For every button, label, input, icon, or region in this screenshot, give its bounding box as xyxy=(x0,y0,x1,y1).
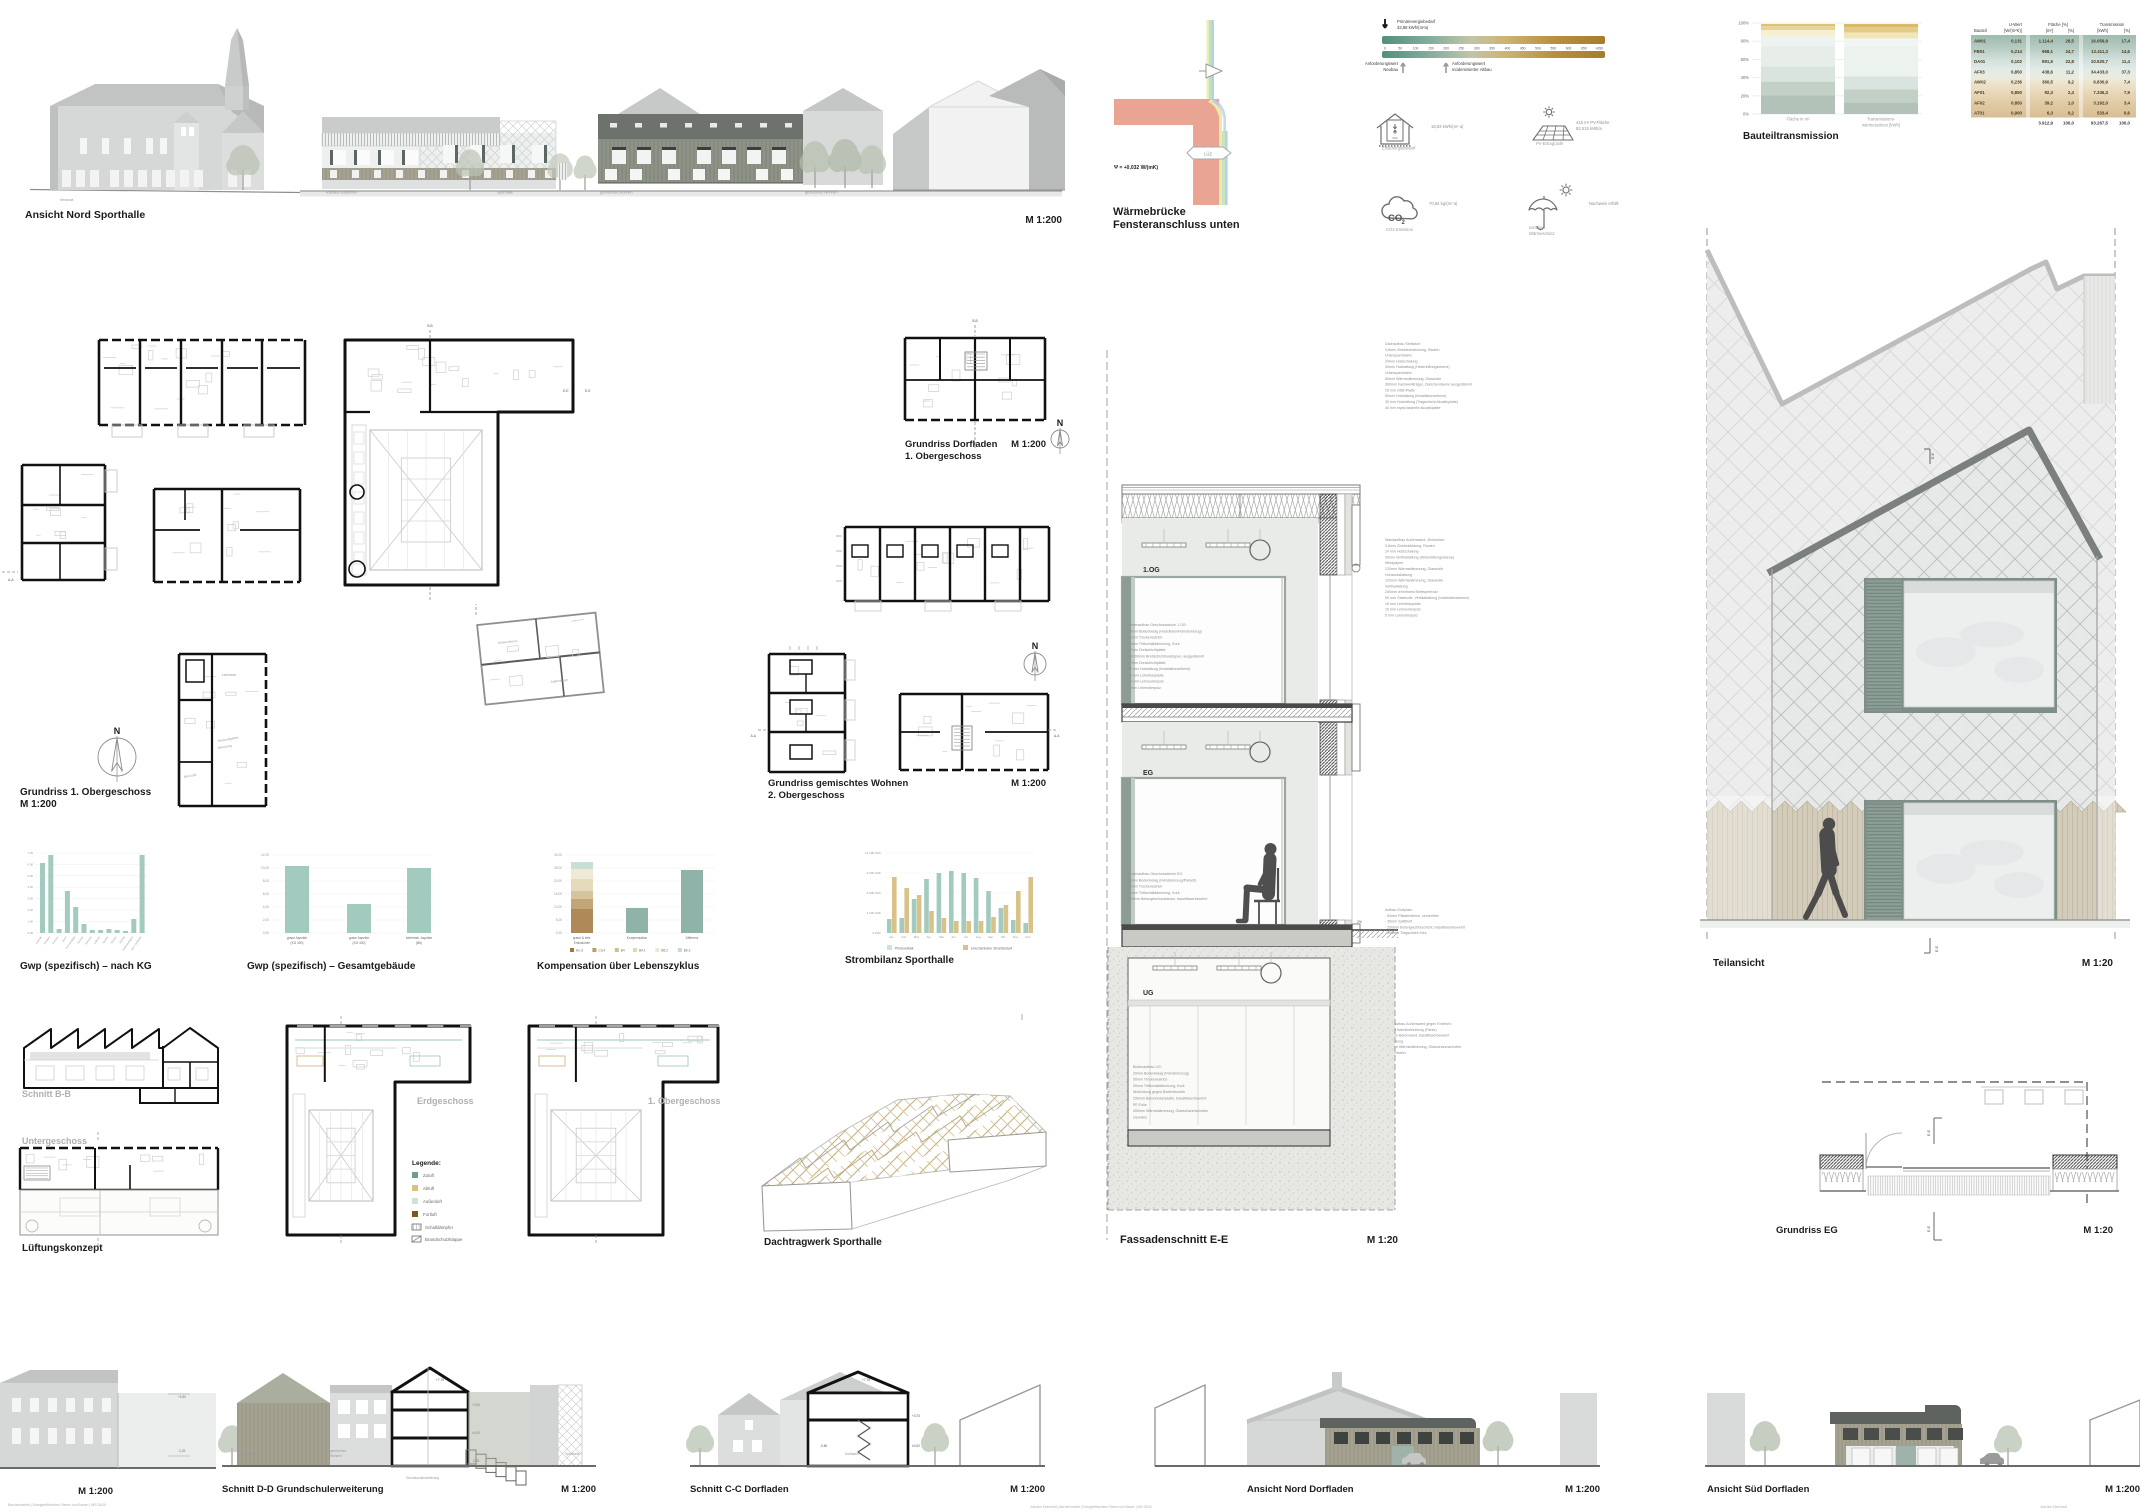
svg-text:Kompensation: Kompensation xyxy=(627,936,648,940)
svg-text:5,00: 5,00 xyxy=(556,918,562,922)
svg-text:968,1: 968,1 xyxy=(2042,49,2054,54)
svg-text:errechenbarer Strombedarf: errechenbarer Strombedarf xyxy=(971,946,1012,950)
svg-text:24 mm Holzschalung: 24 mm Holzschalung xyxy=(1385,550,1419,554)
svg-text:37,3: 37,3 xyxy=(2121,69,2130,74)
svg-text:200: 200 xyxy=(1443,47,1449,51)
svg-text:10,00: 10,00 xyxy=(554,905,562,909)
svg-text:Bachelorarbeit | Energieeffizi: Bachelorarbeit | Energieeffizientes Plan… xyxy=(8,1503,106,1507)
svg-text:Sporthalle: Sporthalle xyxy=(497,191,513,195)
svg-text:0,850: 0,850 xyxy=(2011,90,2023,95)
svg-text:Strombilanz Sporthalle: Strombilanz Sporthalle xyxy=(845,955,954,966)
svg-text:U-Wert: U-Wert xyxy=(2009,22,2023,27)
svg-text:B6.3: B6.3 xyxy=(684,949,691,953)
svg-text:1. Obergeschoss: 1. Obergeschoss xyxy=(905,451,982,462)
svg-text:3.912,9: 3.912,9 xyxy=(2038,121,2053,126)
svg-text:0,236: 0,236 xyxy=(2011,80,2023,85)
svg-text:[%]: [%] xyxy=(2068,28,2074,33)
svg-text:10 mm Lehmunterputz: 10 mm Lehmunterputz xyxy=(1385,608,1421,612)
svg-text:100: 100 xyxy=(1413,47,1419,51)
svg-text:N: N xyxy=(114,726,121,736)
svg-text:Untergeschoss: Untergeschoss xyxy=(22,1136,87,1146)
svg-text:120mm Wärmedämmung, Glaswolle: 120mm Wärmedämmung, Glaswolle xyxy=(1385,567,1443,571)
svg-text:10 mm Lehmunterputz: 10 mm Lehmunterputz xyxy=(1128,680,1164,684)
svg-text:M 1:200: M 1:200 xyxy=(1565,1484,1600,1495)
svg-text:Ansicht Nord Sporthalle: Ansicht Nord Sporthalle xyxy=(25,209,145,221)
svg-text:gemischtes Wohnen: gemischtes Wohnen xyxy=(240,1452,269,1456)
svg-text:12.411,3: 12.411,3 xyxy=(2091,49,2108,54)
svg-text:10,00: 10,00 xyxy=(261,866,269,870)
svg-text:18,83 kWh/(m² a): 18,83 kWh/(m² a) xyxy=(1431,124,1464,129)
svg-text:0,6: 0,6 xyxy=(2124,111,2131,116)
svg-text:Bodenaufbau Geschossdecke EG:: Bodenaufbau Geschossdecke EG: xyxy=(1128,872,1183,876)
svg-text:B6.2: B6.2 xyxy=(661,949,668,953)
svg-text:34.433,0: 34.433,0 xyxy=(2091,69,2109,74)
svg-text:Vertikallattung: Vertikallattung xyxy=(1385,584,1408,588)
svg-text:+6,50: +6,50 xyxy=(178,1395,186,1399)
svg-text:650: 650 xyxy=(1581,47,1587,51)
svg-text:Mär.: Mär. xyxy=(914,935,920,939)
svg-text:Nachweis erfüllt: Nachweis erfüllt xyxy=(1589,201,1619,206)
svg-text:E-E: E-E xyxy=(563,389,569,393)
svg-text:Photovoltaik: Photovoltaik xyxy=(895,946,914,950)
svg-text:5,00: 5,00 xyxy=(28,874,34,878)
svg-text:16.059,9: 16.059,9 xyxy=(2091,39,2109,44)
svg-text:140 mm Wärmedämmung, Glasschau: 140 mm Wärmedämmung, Glasschaumschotter xyxy=(1385,1045,1462,1049)
svg-text:FB01: FB01 xyxy=(1974,49,1985,54)
svg-text:438,6: 438,6 xyxy=(2042,69,2054,74)
svg-text:11,2: 11,2 xyxy=(2066,69,2075,74)
svg-text:E-E: E-E xyxy=(1927,1129,1931,1136)
svg-text:Abdichtung gegen Bodenfeuchte: Abdichtung gegen Bodenfeuchte xyxy=(1133,1090,1185,1094)
svg-text:40 mm mysti-basierte Akustikpl: 40 mm mysti-basierte Akustikplatte xyxy=(1385,406,1441,410)
svg-text:4,00: 4,00 xyxy=(28,885,34,889)
svg-text:Wärmeschutz: Wärmeschutz xyxy=(1529,231,1555,236)
svg-text:Bauteil: Bauteil xyxy=(1974,28,1987,33)
svg-text:modernisierter Altbau: modernisierter Altbau xyxy=(1452,67,1492,72)
svg-text:Sep.: Sep. xyxy=(988,935,994,939)
svg-text:Geovlies: Geovlies xyxy=(1133,1115,1147,1119)
svg-text:14,6: 14,6 xyxy=(2121,49,2130,54)
svg-text:Windpapier: Windpapier xyxy=(1385,561,1404,565)
svg-text:22,8: 22,8 xyxy=(2065,59,2074,64)
svg-text:Fläche [%]: Fläche [%] xyxy=(2048,22,2068,27)
svg-text:25,00: 25,00 xyxy=(554,866,562,870)
svg-text:0 kWh: 0 kWh xyxy=(872,931,881,935)
svg-text:93.267,5: 93.267,5 xyxy=(2091,121,2109,126)
svg-text:Lüftungskonzept: Lüftungskonzept xyxy=(22,1243,103,1254)
svg-text:Gwp (spezifisch) – nach KG: Gwp (spezifisch) – nach KG xyxy=(20,961,152,972)
svg-text:Rathaus /Bibliothek: Rathaus /Bibliothek xyxy=(326,191,357,195)
svg-text:Fläche in m²: Fläche in m² xyxy=(1786,117,1810,122)
svg-text:0: 0 xyxy=(1384,47,1386,51)
svg-text:gemischtes Wohnen: gemischtes Wohnen xyxy=(600,191,633,195)
svg-text:gemischtes: gemischtes xyxy=(330,1449,347,1453)
svg-text:50mm Holzlattung (Installation: 50mm Holzlattung (Installationsebene) xyxy=(1385,394,1446,398)
svg-text:1.114,4: 1.114,4 xyxy=(2039,39,2054,44)
svg-text:6,00: 6,00 xyxy=(263,892,269,896)
svg-text:CO: CO xyxy=(1388,213,1402,224)
svg-text:Joachim Eberhardt | Ba: Joachim Eberhardt | Bachelorarbeit | Ene… xyxy=(1030,1505,1152,1509)
svg-text:UG: UG xyxy=(1143,990,1154,997)
svg-text:120mm Wärmedämmung, Glaswolle: 120mm Wärmedämmung, Glaswolle xyxy=(1385,579,1443,583)
svg-text:-3,25: -3,25 xyxy=(178,1449,185,1453)
svg-text:7.336,3: 7.336,3 xyxy=(2093,90,2108,95)
svg-text:Abluft: Abluft xyxy=(423,1186,435,1191)
svg-text:0,00: 0,00 xyxy=(556,931,562,935)
svg-text:0,850: 0,850 xyxy=(2011,100,2023,105)
svg-text:Emissionen: Emissionen xyxy=(574,941,591,945)
svg-text:15 mm Lehmbauplatte: 15 mm Lehmbauplatte xyxy=(1128,673,1164,677)
svg-text:B-B: B-B xyxy=(972,319,977,323)
svg-text:11,4: 11,4 xyxy=(2122,59,2131,64)
svg-text:wärmesenken [kWh]: wärmesenken [kWh] xyxy=(1862,123,1900,128)
svg-text:B-B: B-B xyxy=(427,324,432,328)
svg-text:Bauteiltransmission: Bauteiltransmission xyxy=(1743,131,1839,142)
svg-text:5 mm Lehmoberputz: 5 mm Lehmoberputz xyxy=(1128,686,1161,690)
svg-text:[%]: [%] xyxy=(2124,28,2130,33)
svg-text:±0,00: ±0,00 xyxy=(912,1444,920,1448)
svg-text:0,8mm Zinkbekleidung, Rauten: 0,8mm Zinkbekleidung, Rauten xyxy=(1385,544,1435,548)
svg-text:3.192,0: 3.192,0 xyxy=(2093,100,2108,105)
svg-text:Fensteranschluss unten: Fensteranschluss unten xyxy=(1113,219,1240,231)
svg-text:Unterspannbahn: Unterspannbahn xyxy=(1385,354,1412,358)
svg-text:[W/(m²K)]: [W/(m²K)] xyxy=(2004,28,2022,33)
svg-text:[m²]: [m²] xyxy=(2046,28,2053,33)
svg-text:Legende:: Legende: xyxy=(412,1160,441,1167)
svg-text:20mm Bodenbelag (Feinsteinzeug: 20mm Bodenbelag (Feinsteinzeug/Parkett) xyxy=(1128,878,1196,882)
svg-text:AW02: AW02 xyxy=(1974,80,1987,85)
svg-text:Transmission: Transmission xyxy=(2100,22,2125,27)
svg-text:Aug.: Aug. xyxy=(976,935,982,939)
svg-text:Differenz: Differenz xyxy=(686,936,699,940)
svg-text:(KG 300): (KG 300) xyxy=(291,941,304,945)
svg-text:(B6): (B6) xyxy=(416,941,422,945)
svg-text:0,102: 0,102 xyxy=(2011,59,2023,64)
svg-text:B4: B4 xyxy=(621,949,625,953)
svg-text:Grundriss EG: Grundriss EG xyxy=(1776,1225,1838,1236)
svg-text:40%: 40% xyxy=(1741,75,1750,80)
svg-text:6.830,9: 6.830,9 xyxy=(2093,80,2108,85)
svg-text:Leseraum: Leseraum xyxy=(222,673,237,677)
svg-text:M 1:200: M 1:200 xyxy=(561,1484,596,1495)
svg-text:30,00: 30,00 xyxy=(554,853,562,857)
svg-text:Primärenergiebedarf: Primärenergiebedarf xyxy=(1397,19,1436,24)
svg-text:Jul.: Jul. xyxy=(964,935,969,939)
svg-text:Joachim Eberhardt: Joachim Eberhardt xyxy=(2040,1505,2067,1509)
svg-text:24,7: 24,7 xyxy=(2065,49,2074,54)
svg-text:1,0: 1,0 xyxy=(2068,100,2075,105)
svg-text:0,214: 0,214 xyxy=(2011,49,2023,54)
svg-text:Ψ = +0,032 W/(mK): Ψ = +0,032 W/(mK) xyxy=(1114,165,1158,171)
svg-text:30mm Trittschalldämmung, Kork: 30mm Trittschalldämmung, Kork xyxy=(1128,891,1180,895)
svg-text:Apr.: Apr. xyxy=(927,935,932,939)
svg-text:240mm lehmfreies Brettsperrhol: 240mm lehmfreies Brettsperrholz xyxy=(1385,590,1438,594)
svg-text:7,00: 7,00 xyxy=(28,851,34,855)
svg-text:3,00: 3,00 xyxy=(28,897,34,901)
svg-text:M 1:20: M 1:20 xyxy=(2083,1225,2113,1236)
svg-text:33,88 kWh/(m²a): 33,88 kWh/(m²a) xyxy=(1397,25,1429,30)
svg-text:15 mm Lehmbauplatte: 15 mm Lehmbauplatte xyxy=(1385,602,1421,606)
svg-text:- 250mm Betongrechtsschicht, b: - 250mm Betongrechtsschicht, basaltfaser… xyxy=(1385,925,1465,929)
svg-text:80%: 80% xyxy=(1741,39,1750,44)
svg-text:50mm Trockenestrich: 50mm Trockenestrich xyxy=(1128,636,1162,640)
svg-text:Jun.: Jun. xyxy=(951,935,957,939)
svg-text:Dez.: Dez. xyxy=(1025,935,1031,939)
svg-text:1. Obergeschoss: 1. Obergeschoss xyxy=(648,1096,721,1106)
svg-text:2. Obergeschoss: 2. Obergeschoss xyxy=(768,790,845,801)
svg-text:250: 250 xyxy=(1459,47,1465,51)
svg-text:Aufbau Dorfplatz:: Aufbau Dorfplatz: xyxy=(1385,908,1413,912)
svg-text:M 1:20: M 1:20 xyxy=(2082,958,2114,969)
svg-text:M 1:200: M 1:200 xyxy=(20,799,57,810)
svg-text:50mm Trockenestrich: 50mm Trockenestrich xyxy=(1133,1078,1167,1082)
svg-text:Bodenaufbau UG:: Bodenaufbau UG: xyxy=(1133,1065,1162,1069)
svg-text:AW01: AW01 xyxy=(1974,39,1987,44)
svg-text:Feb.: Feb. xyxy=(901,935,907,939)
svg-text:400mm Wärmedämmung, Glasschaum: 400mm Wärmedämmung, Glasschaumschotter xyxy=(1133,1109,1209,1113)
svg-text:0,850: 0,850 xyxy=(2011,69,2023,74)
svg-text:Veranda: Veranda xyxy=(60,198,73,202)
svg-text:Transmissions-: Transmissions- xyxy=(1867,117,1896,122)
svg-text:(KG 400): (KG 400) xyxy=(353,941,366,945)
svg-text:Anforderungswert: Anforderungswert xyxy=(1452,61,1486,66)
svg-text:39,2: 39,2 xyxy=(2044,100,2053,105)
svg-text:EG: EG xyxy=(1143,770,1154,777)
svg-text:17,4: 17,4 xyxy=(2121,39,2130,44)
svg-text:AF02: AF02 xyxy=(1974,100,1985,105)
svg-text:A1-3: A1-3 xyxy=(576,949,583,953)
svg-text:CO2-Emission: CO2-Emission xyxy=(1386,227,1414,232)
svg-text:100,0: 100,0 xyxy=(2119,121,2131,126)
svg-text:AT01: AT01 xyxy=(1974,111,1985,116)
svg-text:6,00: 6,00 xyxy=(28,862,34,866)
svg-text:Wärmebrücke: Wärmebrücke xyxy=(1113,206,1186,218)
svg-text:0,900: 0,900 xyxy=(2011,111,2023,116)
svg-text:5 mm Lehmoberputz: 5 mm Lehmoberputz xyxy=(1385,613,1418,617)
svg-text:>650: >650 xyxy=(1595,47,1603,51)
svg-text:M 1:200: M 1:200 xyxy=(1011,778,1046,789)
svg-text:Wandaufbau Außenwand, Zinkraut: Wandaufbau Außenwand, Zinkrauten: xyxy=(1385,538,1445,542)
svg-text:0,00: 0,00 xyxy=(263,931,269,935)
svg-text:Dorfladen: Dorfladen xyxy=(845,1452,859,1456)
svg-text:28,5: 28,5 xyxy=(2065,39,2074,44)
svg-text:Schnitt D-D Grundschulerweit: Schnitt D-D Grundschulerweiterung xyxy=(222,1484,384,1495)
svg-text:250mm Betonbodenplatte, basalt: 250mm Betonbodenplatte, basaltfaserbeweh… xyxy=(1133,1097,1207,1101)
svg-text:Jan.: Jan. xyxy=(889,935,895,939)
svg-text:360mm Fachwerkträger, Zwischen: 360mm Fachwerkträger, Zwischenräume ausg… xyxy=(1385,383,1472,387)
svg-text:20mm Bodenbelag (Feinsteinzeug: 20mm Bodenbelag (Feinsteinzeug) xyxy=(1133,1071,1189,1075)
svg-text:Grundschulerweiterung: Grundschulerweiterung xyxy=(406,1476,439,1480)
svg-text:gemischtes Wohnen: gemischtes Wohnen xyxy=(805,191,838,195)
svg-text:- 30mm Splittbett: - 30mm Splittbett xyxy=(1385,920,1412,924)
svg-text:50mm Trockenestrich: 50mm Trockenestrich xyxy=(1128,885,1162,889)
svg-text:Bodenaufbau Geschossdecke 1.OG: Bodenaufbau Geschossdecke 1.OG: xyxy=(1128,623,1187,627)
svg-text:Zuluft: Zuluft xyxy=(423,1173,435,1178)
svg-text:N: N xyxy=(1032,641,1039,651)
svg-text:8,00: 8,00 xyxy=(263,879,269,883)
svg-text:500: 500 xyxy=(1535,47,1541,51)
svg-text:Horizontallattung: Horizontallattung xyxy=(1385,573,1412,577)
svg-text:M 1:20: M 1:20 xyxy=(1367,1235,1399,1246)
svg-text:Brandschutzklappe: Brandschutzklappe xyxy=(425,1237,463,1242)
svg-text:15,00: 15,00 xyxy=(554,892,562,896)
svg-text:graue Aspekte: graue Aspekte xyxy=(349,936,370,940)
svg-text:Schnitt C-C Dorfladen: Schnitt C-C Dorfladen xyxy=(690,1484,789,1495)
svg-text:Anforderungswert: Anforderungswert xyxy=(1365,61,1399,66)
svg-text:M 1:200: M 1:200 xyxy=(1025,215,1062,226)
svg-text:PV-Ertrag/Jahr: PV-Ertrag/Jahr xyxy=(1536,141,1564,146)
svg-text:Außenluft: Außenluft xyxy=(423,1199,443,1204)
svg-text:80/160mm Brettschichtholzrippe: 80/160mm Brettschichtholzrippen, ausgedä… xyxy=(1128,655,1204,659)
svg-text:Unterspannbahn: Unterspannbahn xyxy=(1385,371,1412,375)
svg-text:25 mm OSB-Platte: 25 mm OSB-Platte xyxy=(1385,388,1415,392)
svg-text:Okt.: Okt. xyxy=(1001,935,1006,939)
svg-text:B4.1: B4.1 xyxy=(639,949,646,953)
svg-text:891,5: 891,5 xyxy=(2042,59,2054,64)
svg-text:LÜZ: LÜZ xyxy=(1204,152,1212,157)
svg-text:graue Aspekte: graue Aspekte xyxy=(287,936,308,940)
svg-text:AF03: AF03 xyxy=(1974,69,1985,74)
svg-text:7,4: 7,4 xyxy=(2124,80,2131,85)
svg-text:Ansicht Süd Dorfladen: Ansicht Süd Dorfladen xyxy=(1707,1484,1810,1495)
svg-text:sommerl.: sommerl. xyxy=(1529,225,1546,230)
svg-text:Nov.: Nov. xyxy=(1013,935,1019,939)
svg-text:Kompensation über Lebenszyklus: Kompensation über Lebenszyklus xyxy=(537,961,700,972)
svg-text:400: 400 xyxy=(1505,47,1511,51)
svg-text:1,00: 1,00 xyxy=(28,919,34,923)
svg-text:Wohnen: Wohnen xyxy=(330,1454,342,1458)
svg-text:0,131: 0,131 xyxy=(2011,39,2023,44)
svg-text:3,4: 3,4 xyxy=(2124,100,2131,105)
svg-text:150: 150 xyxy=(1428,47,1434,51)
svg-text:30mm Trittschalldämmung, Kork: 30mm Trittschalldämmung, Kork xyxy=(1133,1084,1185,1088)
svg-text:E-E: E-E xyxy=(1931,452,1935,459)
svg-text:4,00: 4,00 xyxy=(263,905,269,909)
svg-text:M 1:200: M 1:200 xyxy=(78,1486,113,1497)
svg-text:12.000 kWh: 12.000 kWh xyxy=(865,851,881,855)
svg-text:Grundriss gemischtes Wohnen: Grundriss gemischtes Wohnen xyxy=(768,778,908,789)
svg-text:+7,75: +7,75 xyxy=(436,1378,444,1382)
svg-text:82.515 kWh/a: 82.515 kWh/a xyxy=(1576,126,1603,131)
svg-text:M 1:200: M 1:200 xyxy=(1010,1484,1045,1495)
svg-text:12,00: 12,00 xyxy=(261,853,269,857)
svg-text:Erdgeschoss: Erdgeschoss xyxy=(417,1096,474,1106)
svg-text:360,5: 360,5 xyxy=(2042,80,2054,85)
svg-text:M 1:200: M 1:200 xyxy=(2105,1484,2140,1495)
svg-text:[kWh]: [kWh] xyxy=(2097,28,2108,33)
svg-text:0%: 0% xyxy=(1743,112,1749,117)
svg-text:6,3: 6,3 xyxy=(2047,111,2054,116)
svg-text:450: 450 xyxy=(1520,47,1526,51)
svg-text:600: 600 xyxy=(1566,47,1572,51)
svg-text:2%: 2% xyxy=(1357,920,1362,924)
svg-text:2,4: 2,4 xyxy=(2068,90,2075,95)
svg-text:28mm Bodenbelag (Holzdielen/Fe: 28mm Bodenbelag (Holzdielen/Feinsteinzeu… xyxy=(1128,629,1202,633)
svg-text:415 m² PV-Fläche: 415 m² PV-Fläche xyxy=(1576,120,1610,125)
svg-text:Gwp (spezifisch) – Gesamtgebäu: Gwp (spezifisch) – Gesamtgebäude xyxy=(247,961,416,972)
svg-text:0,8mm Zinkblechdeckung, Rauten: 0,8mm Zinkblechdeckung, Rauten xyxy=(1385,348,1440,352)
svg-text:50 mm Holzlattung (Installatio: 50 mm Holzlattung (Installationsebene) xyxy=(1128,667,1190,671)
svg-text:+7,75: +7,75 xyxy=(862,1378,870,1382)
svg-text:27mm Dreischichtplatte: 27mm Dreischichtplatte xyxy=(1128,661,1166,665)
svg-text:533,4: 533,4 xyxy=(2097,111,2109,116)
svg-text:Schnitt B-B: Schnitt B-B xyxy=(22,1089,71,1099)
svg-text:Fassadenschnitt E-E: Fassadenschnitt E-E xyxy=(1120,1234,1228,1246)
svg-text:C3,4: C3,4 xyxy=(598,949,605,953)
svg-text:Fortluft: Fortluft xyxy=(423,1212,437,1217)
svg-text:SOS: SOS xyxy=(1392,136,1398,140)
svg-text:E-E: E-E xyxy=(1935,945,1939,952)
svg-text:20%: 20% xyxy=(1741,93,1750,98)
svg-text:graue & betr.: graue & betr. xyxy=(573,936,591,940)
svg-text:20,00: 20,00 xyxy=(554,879,562,883)
svg-text:60%: 60% xyxy=(1741,57,1750,62)
svg-text:A-A: A-A xyxy=(1054,734,1060,738)
svg-text:Endenergiebedarf: Endenergiebedarf xyxy=(1382,146,1416,151)
svg-text:30 mm Holzlattung (Tragschicht: 30 mm Holzlattung (Tragschicht Akustikpl… xyxy=(1385,400,1458,404)
svg-text:0,00: 0,00 xyxy=(28,931,34,935)
svg-text:2,00: 2,00 xyxy=(28,908,34,912)
svg-text:Grundriss Dorfladen: Grundriss Dorfladen xyxy=(905,439,998,450)
svg-text:7,9: 7,9 xyxy=(2124,90,2131,95)
svg-text:2,00: 2,00 xyxy=(263,918,269,922)
svg-text:Dachtragwerk Sporthalle: Dachtragwerk Sporthalle xyxy=(764,1237,882,1248)
svg-text:3.000 kWh: 3.000 kWh xyxy=(867,911,882,915)
svg-text:9.000 kWh: 9.000 kWh xyxy=(867,871,882,875)
svg-text:betriebsb. Aspekte: betriebsb. Aspekte xyxy=(406,936,432,940)
svg-text:9,2: 9,2 xyxy=(2068,80,2075,85)
svg-text:30mm Vertikallattung (Hinterlü: 30mm Vertikallattung (Hinterlüftungseben… xyxy=(1385,555,1454,559)
svg-text:AF01: AF01 xyxy=(1974,90,1985,95)
svg-text:0,2: 0,2 xyxy=(2068,111,2075,116)
svg-text:PE-Folie: PE-Folie xyxy=(1133,1103,1147,1107)
svg-text:300: 300 xyxy=(1474,47,1480,51)
svg-text:N: N xyxy=(1057,418,1064,428)
svg-text:DA01: DA01 xyxy=(1974,59,1986,64)
svg-text:350: 350 xyxy=(1489,47,1495,51)
svg-text:27mm Dreischichtplatte: 27mm Dreischichtplatte xyxy=(1128,648,1166,652)
svg-text:Sporthalle: Sporthalle xyxy=(565,1452,580,1456)
svg-text:Dachaufbau Steildach:: Dachaufbau Steildach: xyxy=(1385,342,1421,346)
svg-text:250mm Betongeschossdecke, basa: 250mm Betongeschossdecke, basaltfaserbew… xyxy=(1128,897,1208,901)
svg-text:24mm Holzschalung: 24mm Holzschalung xyxy=(1385,359,1418,363)
svg-text:E-E: E-E xyxy=(585,389,591,393)
svg-text:Grundriss 1. Obergeschoss: Grundriss 1. Obergeschoss xyxy=(20,787,152,798)
svg-text:Neubau: Neubau xyxy=(1383,67,1398,72)
svg-text:Mai: Mai xyxy=(939,935,944,939)
svg-text:92,3: 92,3 xyxy=(2044,90,2053,95)
svg-text:- 60mm Pflastersteine, zementf: - 60mm Pflastersteine, zementfrei xyxy=(1385,914,1439,918)
svg-text:550: 550 xyxy=(1550,47,1556,51)
svg-text:Schalldämpfer: Schalldämpfer xyxy=(425,1225,454,1230)
svg-text:A-A: A-A xyxy=(8,578,14,582)
svg-text:+3,70: +3,70 xyxy=(912,1414,920,1418)
svg-text:M 1:200: M 1:200 xyxy=(1011,439,1046,450)
svg-text:1.OG: 1.OG xyxy=(1143,567,1160,574)
svg-text:Ansicht Nord Dorfladen: Ansicht Nord Dorfladen xyxy=(1247,1484,1354,1495)
svg-text:100%: 100% xyxy=(1738,21,1749,26)
svg-text:10.520,7: 10.520,7 xyxy=(2091,59,2109,64)
svg-text:60mm Wärmedämmung, Glaswolle: 60mm Wärmedämmung, Glaswolle xyxy=(1385,377,1441,381)
svg-text:70,84 kg/(m² a): 70,84 kg/(m² a) xyxy=(1429,201,1458,206)
svg-text:30mm Trittschalldämmung, Kork: 30mm Trittschalldämmung, Kork xyxy=(1128,642,1180,646)
svg-text:E-E: E-E xyxy=(1927,1225,1931,1232)
svg-text:100,0: 100,0 xyxy=(2063,121,2075,126)
svg-text:A-A: A-A xyxy=(751,734,757,738)
svg-text:6.000 kWh: 6.000 kWh xyxy=(867,891,882,895)
svg-text:Teilansicht: Teilansicht xyxy=(1713,958,1765,969)
svg-text:30mm Holzlattung (Hinterlüftun: 30mm Holzlattung (Hinterlüftungsebene) xyxy=(1385,365,1450,369)
